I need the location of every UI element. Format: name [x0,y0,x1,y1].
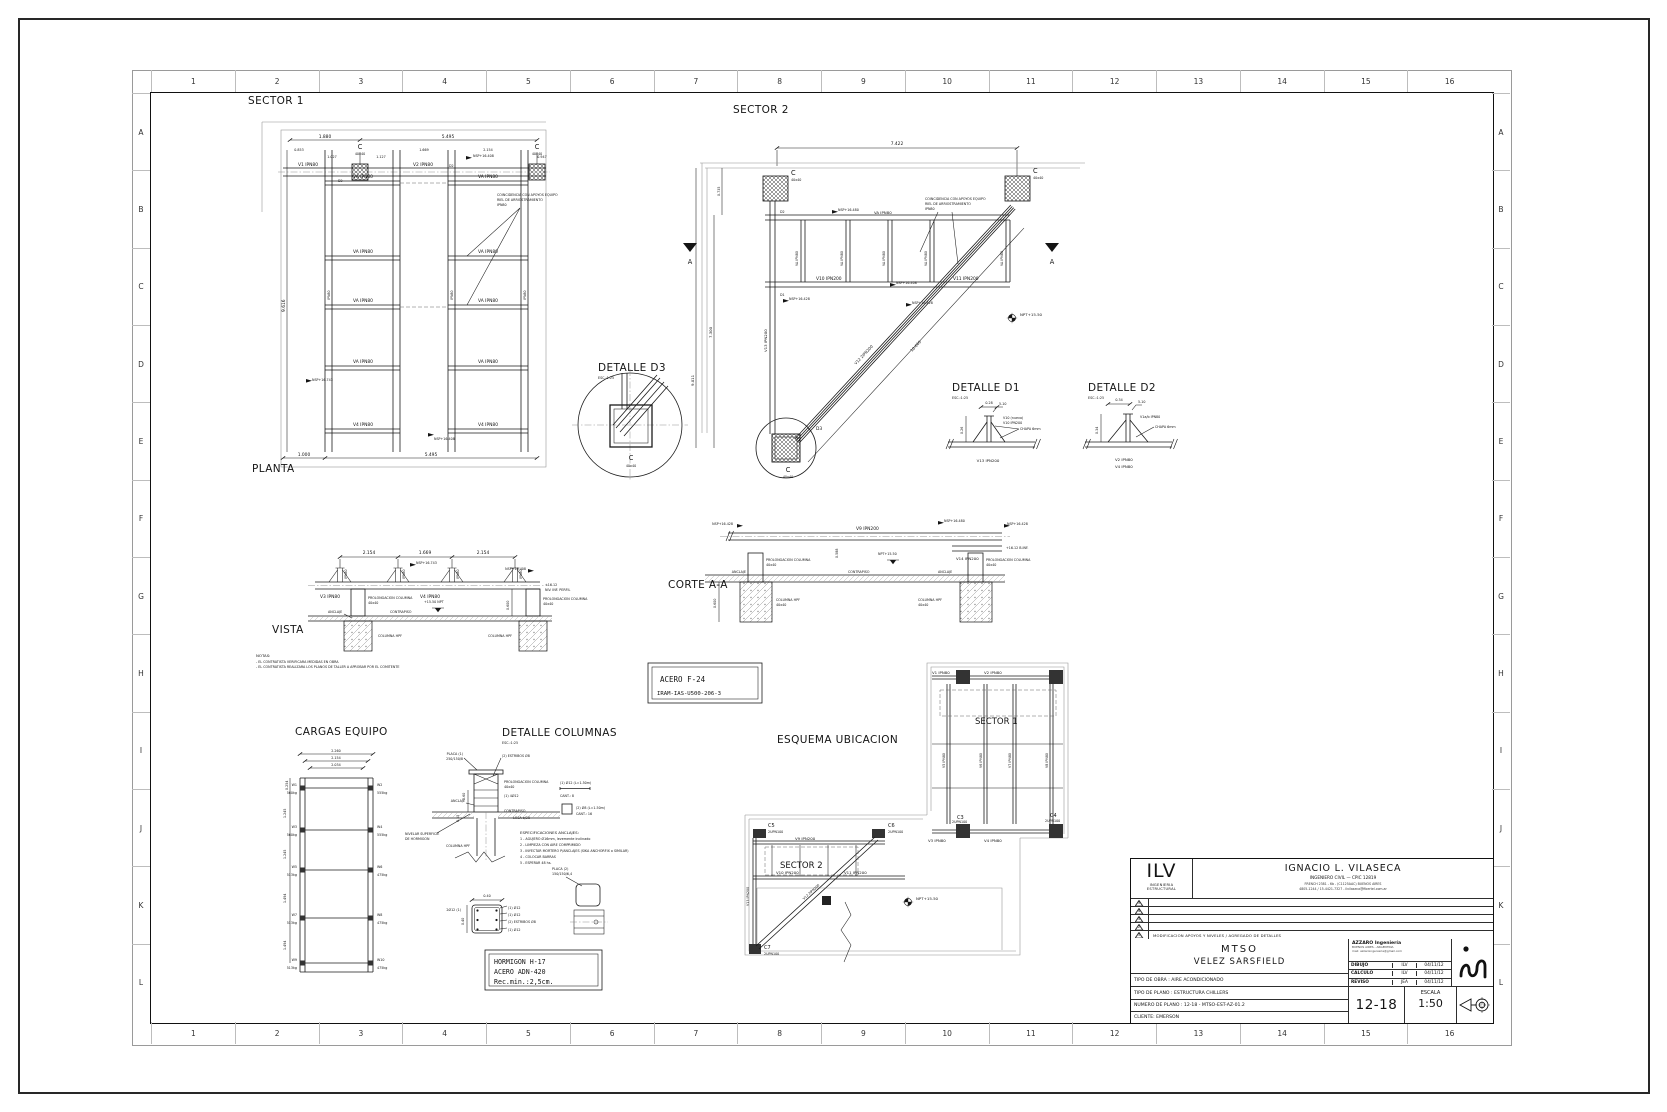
title-block-main: MTSO VELEZ SARSFIELD TIPO DE OBRA : AIRE… [1131,939,1493,1023]
note-text: COINCIDENCIA CON APOYOS EQUIPO [497,193,558,197]
load-label: W4 [377,825,382,829]
member-label: VA IPN80 [924,251,928,266]
level-label: NSP+16.408 [896,281,917,285]
logo-subtext: ESTRUCTURAL [1147,887,1176,891]
level-label: NIV. INF. PERFIL [545,588,570,592]
column-size: 2UPN100 [764,952,779,956]
dim-label: 1.494 [283,894,287,903]
member-label: IPN80 [456,569,460,579]
spec-text: 5 - ESPERAR 48 hs. [520,861,551,865]
dim-label: 1.669 [419,148,428,152]
column-size: 40x40 [355,152,365,156]
member-label: V7 IPN80 [1008,753,1012,768]
detail-tag: D2 [780,210,785,214]
note-text: PLACA (1) [447,752,463,756]
note-text: DE HORMIGON [405,837,430,841]
member-label: IPN80 [523,290,527,300]
level-label: +16.12 [545,583,557,587]
engineer-address: FRENCH 2381 - 6b - (C1125AAC) BUENOS AIR… [1193,882,1493,886]
detail-tag: D1 [780,293,785,297]
member-label: V5 IPN80 [942,753,946,768]
level-label: +15.50 NPT [424,600,445,604]
dim-label: 1.880 [319,134,332,140]
azzaro-info: AZZARO Ingeniería BUENOS AIRES - ARGENTI… [1349,939,1451,961]
column-size: 2UPN100 [768,830,783,834]
dim-label: 5.495 [425,452,438,458]
note-text: - EL CONTRATISTA VERIFICARA MEDIDAS EN O… [256,660,339,664]
dim-label: 0.60 [462,793,466,800]
spec-text: HORMIGON H-17 [494,958,546,966]
corte-aa: V9 IPN200 NSP+16.428 NSP+16.480 NSP+16.4… [668,519,1031,622]
dim-label: 0.40 [461,918,465,925]
member-label: V1a/b IPN80 [1140,415,1160,419]
beam-label: V4 IPN80 [353,422,373,428]
squiggle-logo-icon [1454,942,1492,984]
load-label: W9 [292,958,297,962]
beam-label: VA IPN80 [353,298,373,304]
cargas-equipo: CARGAS EQUIPO 2.260 2.154 2.034 0.254 1.… [283,726,388,972]
sector-label: SECTOR 1 [975,717,1018,727]
section-title: DETALLE D1 [952,382,1020,394]
member-label: V6 IPN80 [979,753,983,768]
load-label: W2 [377,783,382,787]
dim-label: 0.26 [960,427,964,434]
dim-label: 0.588 [835,549,839,558]
revision-triangle-icon: 1 [1131,931,1149,939]
dim-label: 0.735 [717,187,721,196]
detalle-columnas: DETALLE COLUMNAS ESC.:1:25 PLACA (1) 250… [405,727,629,934]
dim-label: 7.300 [708,326,713,338]
column-size: 2UPN100 [952,820,967,824]
revision-text [1149,915,1493,922]
dim-label: 2.154 [483,148,492,152]
dim-label: 0.15 [456,815,460,822]
level-label: NPT+15.50 [878,552,897,556]
column-size: 2UPN100 [888,830,903,834]
note-text: PROLONGACION COLUMNA [543,597,588,601]
sector1-plan: SECTOR 1 1.880 5.495 0.853 1.027 1.127 1… [248,95,558,475]
beam-label: VA IPN80 [874,210,892,215]
member-label: IPN80 [327,290,331,300]
spec-text: ACERO F-24 [660,675,706,684]
dim-label: 0.254 [285,781,289,790]
section-title: SECTOR 2 [733,104,789,116]
scale-value: 1:50 [1405,997,1456,1010]
scale-label: ESC.:1:25 [1088,396,1104,400]
detail-tag: D3 [816,426,822,432]
dim-label: 0.600 [506,601,510,610]
revision-triangle-icon: 3 [1131,915,1149,922]
load-label: W10 [377,958,384,962]
beam-label: VA IPN80 [478,174,498,180]
level-label: +16.12 B.INF. [1006,546,1028,550]
note-text: CONTRAPISO [848,570,870,574]
note-text: 40x40 [776,603,786,607]
column-mark: C5 [768,823,775,829]
note-text: COLUMNA HPF [488,634,512,638]
beam-label: V4 IPN80 [1115,464,1133,469]
section-title: CARGAS EQUIPO [295,726,388,738]
note-text: PROLONGACION COLUMNA [504,780,549,784]
level-label: NSP+16.428 [1007,522,1028,526]
dim-label: 2.154 [363,550,376,556]
spec-text: 4 - COLOCAR BARRAS [520,855,556,859]
member-label: V13 IPN200 [746,887,750,906]
beam-label: V13 IPN200 [763,329,768,352]
signature-row: CALCULOILV04/11/12 [1349,969,1451,977]
revision-triangle-icon: 2 [1131,923,1149,930]
level-label: NPT+15.50 [1020,312,1043,317]
dim-label: 2.154 [331,756,340,760]
note-text: 40x40 [543,602,553,606]
dim-label: 10.660 [909,339,922,353]
revision-text [1149,899,1493,906]
revision-row: 4 [1131,907,1493,915]
hormigon-spec-box: HORMIGON H-17 ACERO ADN-420 Rec.min.:2,5… [485,950,602,990]
project-line2: VELEZ SARSFIELD [1131,957,1348,967]
logo-subtext: INGENIERIA [1150,883,1174,887]
beam-label: V9 IPN200 [795,836,816,841]
load-value: 555kg [377,833,387,837]
dim-label: 0.28 [985,401,992,405]
ilv-logo: ILV INGENIERIAESTRUCTURAL [1131,859,1193,898]
note-text: PROLONGACION COLUMNA [986,558,1031,562]
spec-text: IRAM-IAS-U500-206-3 [657,691,721,697]
number-scale-strip: 12-18 ESCALA 1:50 [1349,986,1493,1023]
beam-label: VA IPN80 [478,249,498,255]
beam-label: V4 IPN80 [478,422,498,428]
signature-row: REVISOJEA04/11/12 [1349,978,1451,986]
level-label: NPT+15.50 [916,896,939,901]
notes-title: NOTAS: [256,653,271,658]
tipo-plano-row: TIPO DE PLANO : ESTRUCTURA CHILLERS [1131,986,1349,999]
revision-row: 3 [1131,915,1493,923]
tipo-obra-row: TIPO DE OBRA : AIRE ACONDICIONADO [1131,973,1349,986]
signature-row: DIBUJOILV04/11/12 [1349,961,1451,969]
beam-label: V1 IPN80 [932,670,950,675]
member-label: IPN80 [344,569,348,579]
dim-label: 1.669 [419,550,432,556]
column-size: 40x40 [532,152,542,156]
drawing-sheet-page: 12345678910111213141516 1234567891011121… [0,0,1667,1112]
column-mark: C [1033,167,1038,175]
section-title: PLANTA [252,463,295,475]
note-text: (1) Ø12 (L=1.50m) [560,780,591,785]
dim-label: 9.011 [690,374,695,386]
revision-text [1149,907,1493,914]
load-value: 513kg [287,966,297,970]
note-text: 150/150/6,4 [552,872,572,876]
note-text: (2) Ø8 (L=1.50m) [576,805,605,810]
note-text: 40x40 [986,563,996,567]
project-name: MTSO VELEZ SARSFIELD [1131,939,1349,973]
level-label: NSP+16.743 [312,378,333,382]
member-label: V10 IPN200 [1003,421,1022,425]
engineer-name: IGNACIO L. VILASECA [1193,863,1493,874]
section-title: ESQUEMA UBICACION [777,734,898,746]
load-label: W8 [377,913,382,917]
scale-label: ESC.:1:25 [502,741,518,745]
column-size: 2UPN100 [1045,819,1060,823]
revision-triangle-icon: 5 [1131,899,1149,906]
beam-label: V10 IPN200 [816,276,842,282]
level-label: NSP+16.428 [712,522,733,526]
note-text: ANCLAJE [328,610,342,614]
first-angle-projection-icon [1458,990,1492,1020]
member-label: IPN80 [450,290,454,300]
column-size: 40x40 [1033,176,1043,180]
dim-label: 2.260 [331,749,340,753]
dim-label: 1.494 [283,941,287,950]
note-text: (2) ESTRIBOS Ø8 [502,753,530,758]
beam-label: VA IPN80 [353,249,373,255]
load-value: 555kg [377,791,387,795]
revision-triangle-icon: 4 [1131,907,1149,914]
dim-label: 1.127 [376,155,385,159]
dim-label: 1.245 [283,850,287,859]
dim-label: 0.34 [1095,427,1099,434]
note-text: 2Ø12 (1) [446,907,461,912]
member-label: IPN80 [402,569,406,579]
load-label: W3 [292,825,297,829]
column-size: 40x40 [791,178,801,182]
note-text: (2) ESTRIBOS Ø8 [508,919,536,924]
dim-label: 1.245 [283,809,287,818]
note-text: COINCIDENCIA CON APOYOS EQUIPO [925,197,986,201]
detalle-d3: DETALLE D3 ESC.:1:25 C 40x40 [572,362,688,481]
revision-text: MODIFICACION APOYOS Y NIVELES / AGREGADO… [1149,931,1493,939]
detail-tag: D2 [449,164,454,168]
column-mark: C6 [888,823,895,829]
beam-label: V2 IPN80 [1115,457,1133,462]
note-text: (1) 4Ø12 [504,793,519,798]
note-text: COLUMNA HPF [378,634,402,638]
dim-label: 0.853 [294,148,303,152]
column-size: 40x40 [626,464,636,468]
note-text: PROLONGACION COLUMNA [766,558,811,562]
spec-text: ACERO ADN-420 [494,968,546,976]
note-text: PLACA (2) [552,867,568,871]
level-label: NSP+16.480 [838,208,859,212]
engineer-contact: 4805-1244 / 15-4421-7327 - ilvilaseca@fi… [1193,887,1493,891]
member-label: V8 IPN80 [1045,753,1049,768]
note-text: RIEL DE ARRIOSTRAMIENTO [497,198,543,202]
column-size: 40x40 [783,475,793,479]
revision-text [1149,923,1493,930]
note-text: ANCLAJE [938,570,952,574]
load-label: W7 [292,913,297,917]
beam-label: V4 IPN80 [984,838,1002,843]
title-block-header: ILV INGENIERIAESTRUCTURAL IGNACIO L. VIL… [1131,859,1493,899]
plate-label: CHAPA 6mm [1155,425,1176,429]
beam-label: V9 IPN200 [856,526,879,532]
column-mark: C [786,466,791,474]
va-beams: VA IPN80 VA IPN80 VA IPN80 VA IPN80 VA I… [325,174,528,441]
revision-row: 2 [1131,923,1493,931]
beam-label: VA IPN80 [478,359,498,365]
beam-label: VA IPN80 [353,174,373,180]
note-text: - EL CONTRATISTA REALIZARA LOS PLANOS DE… [256,665,399,669]
beam-label: V2 IPN80 [984,670,1002,675]
spec-text: 3 - INYECTAR MORTERO P/ANCLAJES (SIKA AN… [520,849,629,853]
beam-label: V2 IPN80 [413,162,433,168]
weld-label: 5-10 [999,402,1006,406]
numero-plano-row: NUMERO DE PLANO : 12-18 - MTSO-EST-AZ-01… [1131,999,1349,1011]
title-block: ILV INGENIERIAESTRUCTURAL IGNACIO L. VIL… [1130,858,1494,1024]
load-value: 475kg [377,921,387,925]
beam-label: V3 IPN80 [928,838,946,843]
note-text: COLUMNA HPF [446,844,470,848]
note-text: 250/150/8 [446,757,463,761]
note-text: (1) Ø12 [508,905,521,910]
column-mark: C [791,169,796,177]
level-label: NSP+16.428 [789,297,810,301]
level-label: NSP+16.408 [434,437,455,441]
dim-label: 0.34 [1115,398,1122,402]
note-text: (1) Ø12 [508,912,521,917]
esquema-ubicacion: ESQUEMA UBICACION V1 IPN80 V2 IPN80 V3 I… [745,663,1068,962]
note-text: (1) Ø12 [508,927,521,932]
sector-label: SECTOR 2 [780,861,823,871]
logo-text: ILV [1131,862,1192,881]
dim-label: 5.495 [442,134,455,140]
engineer-role: INGENIERO CIVIL — CPIC 12819 [1193,875,1493,880]
beam-label: V3 IPN80 [320,594,340,600]
detalle-d1: DETALLE D1 ESC.:1:25 V13 IPN200 0.28 0.2… [946,382,1041,463]
level-label: NSP+16.743 [416,561,437,565]
note-text: 40x40 [766,563,776,567]
load-row: W1 560kg W2 555kg W3 560kg W4 555kg W5 5… [287,783,388,970]
note-text: PROLONGACION COLUMNA [368,596,413,600]
beam-label: V13 IPN200 [977,458,1000,463]
beam-label: VA IPN80 [353,359,373,365]
note-text: CONTRAPISO [390,610,412,614]
spec-text: Rec.min.:2,5cm. [494,978,554,986]
section-title: VISTA [272,624,304,636]
member-label: VA IPN80 [795,251,799,266]
scale-label: ESC.:1:25 [952,396,968,400]
section-title: DETALLE D3 [598,362,666,374]
load-value: 475kg [377,966,387,970]
note-text: COLUMNA HPF [776,598,800,602]
note-text: CANT.: 8 [560,794,574,798]
column-mark: C [535,143,540,151]
revision-row: 5 [1131,899,1493,907]
section-mark: A [1050,258,1055,266]
spec-text: ESPECIFICACIONES ANCLAJES: [520,830,579,835]
note-text: 40x40 [504,785,514,789]
load-label: W6 [377,865,382,869]
member-label: VA IPN80 [840,251,844,266]
dim-label: 0.600 [713,599,717,608]
column-mark: C [629,454,634,462]
column-mark: C [358,143,363,151]
signature-table: DIBUJOILV04/11/12 CALCULOILV04/11/12 REV… [1349,961,1451,986]
dim-label: 2.154 [477,550,490,556]
note-text: IPN80 [925,207,935,211]
dim-label: 9.616 [281,299,287,312]
note-text: CANT.: 16 [576,812,592,816]
beam-label: V1 IPN80 [298,162,318,168]
section-title: CORTE A-A [668,579,728,591]
note-text: ANCLAJE [732,570,746,574]
load-value: 513kg [287,873,297,877]
azzaro-logo [1451,939,1493,986]
acero-spec-box: ACERO F-24 IRAM-IAS-U500-206-3 [648,663,762,703]
note-text: IPN80 [497,203,507,207]
member-label: V10 (nuevo) [1003,416,1023,420]
vista-elevation: 2.154 1.669 2.154 IPN80 IPN80 IPN80 IPN8… [256,550,588,669]
note-text: 40x40 [368,601,378,605]
note-text: RIEL DE ARRIOSTRAMIENTO [925,202,971,206]
note-text: COLUMNA HPF [918,598,942,602]
cliente-row: CLIENTE: EMERSON [1131,1011,1349,1023]
dim-label: 0.40 [483,894,490,898]
load-value: 475kg [377,873,387,877]
dim-label: 2.034 [331,763,340,767]
section-title: DETALLE COLUMNAS [502,727,617,739]
level-label: NSP+16.480 [944,519,965,523]
engineer-info: IGNACIO L. VILASECA INGENIERO CIVIL — CP… [1193,859,1493,898]
section-title: SECTOR 1 [248,95,304,107]
beam-label: V11 IPN200 [844,870,867,875]
load-label: W1 [292,783,297,787]
load-value: 560kg [287,791,297,795]
plate-label: CHAPA 6mm [1020,427,1041,431]
dim-label: 1.000 [298,452,311,458]
load-value: 560kg [287,833,297,837]
level-label: NSP+16.408 [473,154,494,158]
project-line1: MTSO [1131,944,1348,955]
beam-label: VA IPN80 [478,298,498,304]
note-text: NIVELAR SUPERFICIE [405,832,439,836]
section-mark: A [688,258,693,266]
sector2-plan: SECTOR 2 7.422 C 40x40 C 40x40 A A VA IP… [683,104,1085,479]
level-label: NSP+16.408 [505,567,526,571]
spec-text: 2 - LIMPIEZA CON AIRE COMPRIMIDO [520,843,581,847]
note-text: 40x40 [918,603,928,607]
azzaro-mail: mail: azzaroingenieria@gmail.com [1352,950,1451,954]
scale-label: ESCALA [1405,990,1456,996]
detalle-d2: DETALLE D2 ESC.:1:25 0.34 0.34 5-10 V1a/… [1083,382,1178,469]
plan-number: 12-18 [1349,987,1405,1023]
member-label: VA IPN80 [882,251,886,266]
load-label: W5 [292,865,297,869]
revision-rows: 5 4 3 2 1 [1131,899,1493,939]
projection-symbol [1457,987,1493,1023]
weld-label: 5-10 [1138,400,1145,404]
scale-cell: ESCALA 1:50 [1405,987,1457,1023]
load-value: 513kg [287,921,297,925]
spec-text: 1 - AGUJERO Ø16mm, levemente inclinado [520,836,590,841]
column-mark: C7 [764,945,771,951]
section-title: DETALLE D2 [1088,382,1156,394]
revision-row: 1 MODIFICACION APOYOS Y NIVELES / AGREGA… [1131,931,1493,939]
beam-label: V12 2IPN200 [802,883,820,900]
dim-label: 7.422 [891,141,904,147]
